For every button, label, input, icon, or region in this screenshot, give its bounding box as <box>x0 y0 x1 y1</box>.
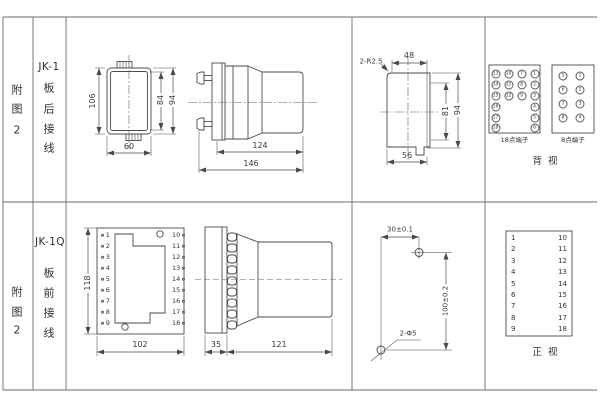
terminal-point: 1 <box>576 72 585 81</box>
wiring-label-char: 接 <box>44 124 55 135</box>
figure-label-char: 附 <box>12 287 23 298</box>
plate-terminal: 1 <box>101 232 110 239</box>
terminal-number: 6 <box>106 287 110 294</box>
terminal-point: 2 <box>530 81 539 90</box>
terminal-8-title: 8点端子 <box>551 137 595 144</box>
dim-30: 30±0.1 <box>387 227 413 234</box>
rear-view-label: 背 视 <box>503 157 587 167</box>
dim-106: 106 <box>89 91 97 110</box>
terminal-number: 16 <box>172 298 180 305</box>
figure-label-char: 2 <box>14 325 21 336</box>
terminal-table-right-column: 101112131415161718 <box>547 233 567 336</box>
table-cell: 4 <box>511 267 531 278</box>
terminal-point: 3 <box>576 100 585 109</box>
terminal-point: 7 <box>559 100 568 109</box>
terminal-grid-18: 131071141182151293164175186 <box>489 65 540 133</box>
linework-svg <box>0 0 600 400</box>
table-cell: 8 <box>511 313 531 324</box>
dim-94b: 94 <box>454 103 462 117</box>
terminal-point: 10 <box>504 70 513 79</box>
plate-terminals-left: 123456789 <box>101 0 115 400</box>
dim-35: 35 <box>211 341 221 349</box>
table-cell: 5 <box>511 279 531 290</box>
terminal-dot-icon <box>101 266 104 269</box>
terminal-point: 2 <box>576 86 585 95</box>
terminal-point: 8 <box>517 81 526 90</box>
plate-terminal: 5 <box>101 276 110 283</box>
plate-terminal: 3 <box>101 254 110 261</box>
wiring-label-char: 前 <box>44 288 55 299</box>
terminal-point: 12 <box>504 92 513 101</box>
table-cell: 14 <box>547 279 567 290</box>
plate-terminal: 16 <box>172 298 185 305</box>
terminal-dot-icon <box>182 266 185 269</box>
table-cell: 3 <box>511 256 531 267</box>
terminal-point: 6 <box>559 86 568 95</box>
wiring-label-char: 线 <box>44 143 55 154</box>
table-cell: 11 <box>547 244 567 255</box>
jk1-side-view <box>188 63 318 173</box>
terminal-dot-icon <box>101 288 104 291</box>
dim-56: 56 <box>402 152 412 160</box>
plate-terminal: 18 <box>172 320 185 327</box>
terminal-point: 8 <box>559 114 568 123</box>
terminal-point: 18 <box>491 124 500 133</box>
dim-hole-spec: 2-Φ5 <box>400 331 417 338</box>
terminal-point: 14 <box>491 81 500 90</box>
plate-terminal: 15 <box>172 287 185 294</box>
plate-terminals-right: 101112131415161718 <box>169 0 185 400</box>
dim-81: 81 <box>442 104 450 118</box>
wiring-label-char: 接 <box>44 308 55 319</box>
table-cell: 6 <box>511 290 531 301</box>
terminal-number: 10 <box>172 232 180 239</box>
plate-terminal: 17 <box>172 309 185 316</box>
dim-corner-radius: 2-R2.5 <box>360 59 383 66</box>
model-label-jk1: JK-1 <box>38 62 59 73</box>
terminal-grid-8: 51627384 <box>552 65 594 133</box>
figure-label-char: 2 <box>14 125 21 136</box>
table-cell: 1 <box>511 233 531 244</box>
terminal-dot-icon <box>101 321 104 324</box>
relay-outline-drawing-sheet: { "row1": { "figure": ["附", "图", "2"], "… <box>0 0 600 400</box>
plate-terminal: 12 <box>172 254 185 261</box>
dim-60: 60 <box>124 143 134 151</box>
dim-100: 100±0.2 <box>443 284 450 318</box>
dim-124: 124 <box>252 142 267 150</box>
terminal-point: 11 <box>504 81 513 90</box>
table-cell: 7 <box>511 301 531 312</box>
terminal-dot-icon <box>101 299 104 302</box>
front-view-label: 正 视 <box>513 348 577 358</box>
terminal-dot-icon <box>182 277 185 280</box>
terminal-number: 3 <box>106 254 110 261</box>
terminal-dot-icon <box>182 299 185 302</box>
terminal-18-title: 18点端子 <box>487 137 542 144</box>
wiring-label-char: 后 <box>44 104 55 115</box>
table-cell: 15 <box>547 290 567 301</box>
terminal-point: 15 <box>491 92 500 101</box>
table-cell: 12 <box>547 256 567 267</box>
table-cell: 9 <box>511 324 531 335</box>
terminal-dot-icon <box>101 255 104 258</box>
terminal-number: 1 <box>106 232 110 239</box>
terminal-number: 11 <box>172 243 180 250</box>
terminal-point: 1 <box>530 70 539 79</box>
jk1q-drill-plan <box>371 237 452 361</box>
plate-terminal: 10 <box>172 232 185 239</box>
terminal-number: 13 <box>172 265 180 272</box>
wiring-label-char: 板 <box>44 268 55 279</box>
jk1q-side-view <box>195 227 342 356</box>
plate-terminal: 2 <box>101 243 110 250</box>
terminal-number: 18 <box>172 320 180 327</box>
table-cell: 2 <box>511 244 531 255</box>
dim-102: 102 <box>132 341 147 349</box>
wiring-label-char: 板 <box>44 83 55 94</box>
terminal-number: 9 <box>106 320 110 327</box>
plate-terminal: 4 <box>101 265 110 272</box>
dim-146: 146 <box>243 160 258 168</box>
plate-terminal: 8 <box>101 309 110 316</box>
terminal-number: 5 <box>106 276 110 283</box>
terminal-point: 4 <box>576 114 585 123</box>
terminal-number: 17 <box>172 309 180 316</box>
plate-terminal: 6 <box>101 287 110 294</box>
terminal-number: 12 <box>172 254 180 261</box>
terminal-point: 16 <box>491 103 500 112</box>
plate-terminal: 7 <box>101 298 110 305</box>
terminal-number: 4 <box>106 265 110 272</box>
dim-48: 48 <box>404 52 414 60</box>
figure-label-char: 附 <box>12 85 23 96</box>
terminal-dot-icon <box>182 321 185 324</box>
table-cell: 18 <box>547 324 567 335</box>
terminal-dot-icon <box>182 233 185 236</box>
terminal-point: 9 <box>517 92 526 101</box>
plate-terminal: 9 <box>101 320 110 327</box>
terminal-point: 5 <box>559 72 568 81</box>
terminal-dot-icon <box>182 244 185 247</box>
dim-84: 84 <box>157 93 165 107</box>
terminal-point: 4 <box>530 103 539 112</box>
terminal-dot-icon <box>182 255 185 258</box>
table-cell: 13 <box>547 267 567 278</box>
table-cell: 10 <box>547 233 567 244</box>
terminal-dot-icon <box>101 310 104 313</box>
figure-label-char: 图 <box>12 307 23 318</box>
terminal-point: 7 <box>517 70 526 79</box>
plate-terminal: 13 <box>172 265 185 272</box>
plate-terminal: 11 <box>172 243 185 250</box>
terminal-point: 13 <box>491 70 500 79</box>
dim-118: 118 <box>84 273 92 292</box>
terminal-number: 14 <box>172 276 180 283</box>
terminal-point: 3 <box>530 92 539 101</box>
dim-121: 121 <box>271 341 286 349</box>
terminal-number: 2 <box>106 243 110 250</box>
model-label-jk1q: JK-1Q <box>35 237 65 248</box>
table-cell: 17 <box>547 313 567 324</box>
terminal-dot-icon <box>182 288 185 291</box>
terminal-point: 6 <box>530 124 539 133</box>
terminal-point: 17 <box>491 114 500 123</box>
figure-label-char: 图 <box>12 104 23 115</box>
table-cell: 16 <box>547 301 567 312</box>
terminal-dot-icon <box>182 310 185 313</box>
terminal-dot-icon <box>101 233 104 236</box>
wiring-label-char: 线 <box>44 328 55 339</box>
terminal-number: 8 <box>106 309 110 316</box>
terminal-number: 15 <box>172 287 180 294</box>
terminal-dot-icon <box>101 277 104 280</box>
terminal-table-left-column: 123456789 <box>511 233 531 336</box>
terminal-dot-icon <box>101 244 104 247</box>
terminal-number: 7 <box>106 298 110 305</box>
terminal-point: 5 <box>530 114 539 123</box>
plate-terminal: 14 <box>172 276 185 283</box>
